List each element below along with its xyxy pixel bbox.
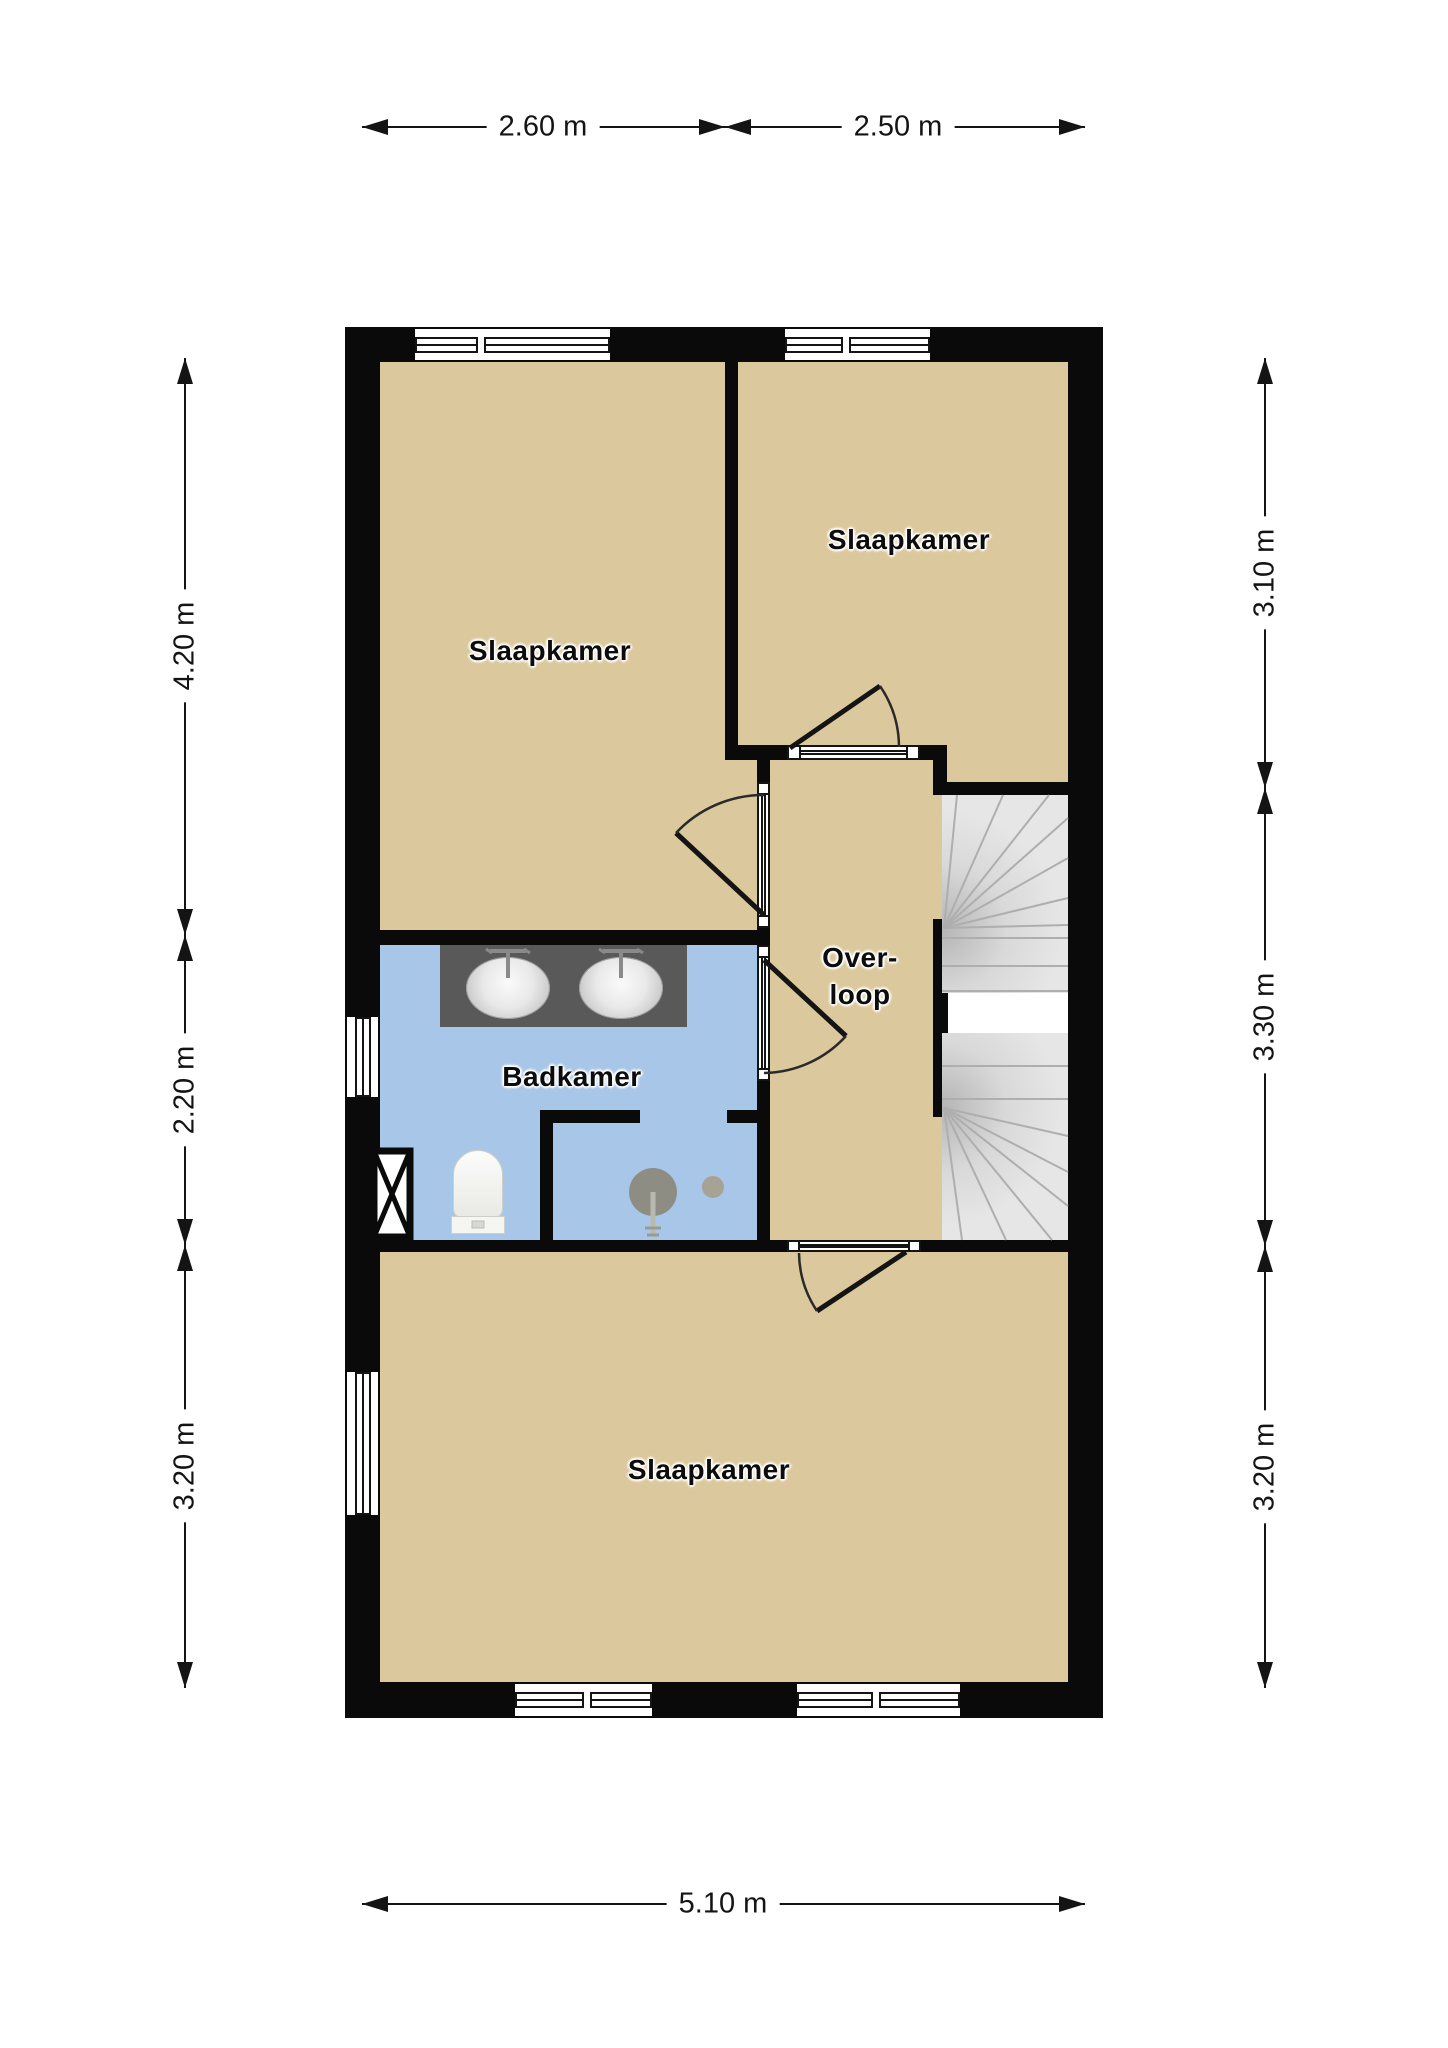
door-jamb <box>757 945 770 958</box>
room-label-badkamer: Badkamer <box>502 1061 641 1093</box>
door-bathroom-icon <box>757 958 770 1068</box>
window-glazing <box>879 1692 960 1708</box>
dim-arrow-left-icon <box>725 119 751 135</box>
dim-label-bottom: 5.10 m <box>667 1884 780 1925</box>
sink-right-icon <box>579 957 663 1019</box>
door-bedroom2-icon <box>801 745 906 760</box>
wall-stair-left-stub <box>933 993 948 1033</box>
window-glazing <box>415 337 478 353</box>
sink-left-icon <box>466 957 550 1019</box>
window-glazing <box>785 337 843 353</box>
window-glazing <box>484 337 610 353</box>
dim-label-top-1: 2.60 m <box>487 107 600 148</box>
dim-arrow-down-icon <box>177 1219 193 1245</box>
wall-stairs-top <box>933 782 1068 795</box>
door-jamb <box>757 915 770 928</box>
staircase-upper-run <box>942 795 1068 993</box>
dim-arrow-left-icon <box>362 119 388 135</box>
door-jamb <box>908 1240 921 1252</box>
dim-arrow-up-icon <box>177 935 193 961</box>
window-glazing <box>355 1017 371 1097</box>
dim-label-right-1: 3.10 m <box>1245 517 1286 630</box>
door-bedroom3-icon <box>800 1240 908 1252</box>
dim-arrow-right-icon <box>1059 119 1085 135</box>
wall-shower-vertical <box>540 1110 553 1242</box>
stairwell-void <box>948 993 1068 1033</box>
window-glazing <box>849 337 930 353</box>
door-jamb <box>757 1068 770 1081</box>
dim-arrow-right-icon <box>699 119 725 135</box>
window-glazing <box>355 1372 371 1515</box>
room-label-slaapkamer-top-right: Slaapkamer <box>828 524 990 556</box>
door-jamb <box>757 782 770 795</box>
wall-bedroom3-top <box>380 1240 1068 1252</box>
dim-arrow-up-icon <box>1257 788 1273 814</box>
dim-label-right-2: 3.30 m <box>1245 961 1286 1074</box>
room-label-text: loop <box>822 976 898 1013</box>
wall-shower-right <box>727 1110 758 1123</box>
floor-plan: Slaapkamer Slaapkamer Badkamer Over- loo… <box>0 0 1448 2048</box>
dim-arrow-down-icon <box>177 1662 193 1688</box>
dim-label-top-2: 2.50 m <box>842 107 955 148</box>
room-label-slaapkamer-top-left: Slaapkamer <box>469 635 631 667</box>
dim-arrow-down-icon <box>1257 762 1273 788</box>
wall-exterior-bottom <box>345 1682 1103 1718</box>
dim-arrow-up-icon <box>177 1245 193 1271</box>
room-label-text: Badkamer <box>502 1061 641 1092</box>
wall-shower-left <box>540 1110 640 1123</box>
dim-arrow-right-icon <box>1059 1896 1085 1912</box>
room-label-text: Slaapkamer <box>828 524 990 555</box>
window-glazing <box>515 1692 584 1708</box>
dim-arrow-left-icon <box>362 1896 388 1912</box>
dim-arrow-up-icon <box>1257 358 1273 384</box>
door-jamb <box>787 745 801 760</box>
room-label-text: Over- <box>822 939 898 976</box>
window-glazing <box>590 1692 652 1708</box>
toilet-icon <box>453 1150 503 1218</box>
dim-arrow-up-icon <box>1257 1246 1273 1272</box>
door-jamb <box>787 1240 800 1252</box>
door-jamb <box>906 745 920 760</box>
room-label-overloop: Over- loop <box>822 939 898 1013</box>
staircase-lower-run <box>942 1033 1068 1240</box>
wall-exterior-right <box>1068 327 1103 1718</box>
room-label-text: Slaapkamer <box>628 1454 790 1485</box>
dim-arrow-down-icon <box>1257 1662 1273 1688</box>
dim-label-right-3: 3.20 m <box>1245 1411 1286 1524</box>
room-label-text: Slaapkamer <box>469 635 631 666</box>
dim-label-left-1: 4.20 m <box>165 590 206 703</box>
door-bedroom1-icon <box>757 795 770 915</box>
dim-arrow-up-icon <box>177 358 193 384</box>
window-glazing <box>797 1692 873 1708</box>
dim-arrow-down-icon <box>177 909 193 935</box>
room-label-slaapkamer-bottom: Slaapkamer <box>628 1454 790 1486</box>
dim-label-left-2: 2.20 m <box>165 1034 206 1147</box>
toilet-cistern <box>451 1216 505 1234</box>
wall-bathroom-top <box>380 930 757 945</box>
dim-arrow-down-icon <box>1257 1220 1273 1246</box>
dim-label-left-3: 3.20 m <box>165 1410 206 1523</box>
wall-bedroom-divider <box>725 362 738 752</box>
